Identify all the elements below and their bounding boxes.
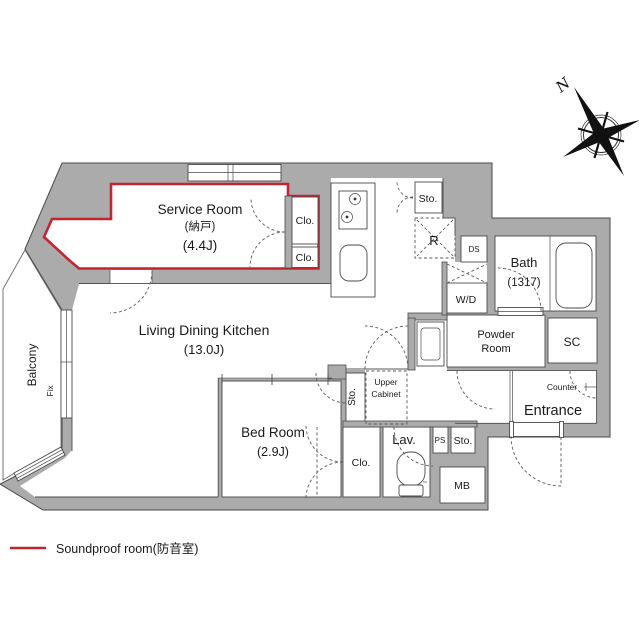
- duct-space-label: DS: [468, 245, 479, 254]
- powder-room-label-1: Powder: [477, 329, 515, 341]
- entrance-label: Entrance: [524, 403, 582, 419]
- service-room-area-label: (4.4J): [183, 238, 218, 253]
- mail-box-label: MB: [454, 480, 470, 492]
- service-door-opening: [110, 270, 152, 284]
- upper-cabinet-label-1: Upper: [374, 377, 397, 387]
- closet-label-2: Clo.: [296, 252, 315, 264]
- service-room-window: [188, 165, 281, 182]
- washer-dryer-label: W/D: [456, 294, 477, 306]
- closet-label-1: Clo.: [296, 215, 315, 227]
- bed-room-area-label: (2.9J): [257, 445, 289, 459]
- bath-label: Bath: [511, 255, 538, 270]
- ldk-label: Living Dining Kitchen: [139, 322, 270, 338]
- bedroom-closet-label: Clo.: [352, 457, 371, 469]
- north-label: N: [551, 73, 574, 96]
- shoe-closet-label: SC: [564, 335, 581, 349]
- bath-size-label: (1317): [507, 277, 540, 289]
- toilet-icon: [397, 452, 427, 496]
- service-room-label: Service Room: [158, 202, 243, 217]
- pipe-space-label: PS: [435, 436, 446, 445]
- service-room-jp-label: (納戸): [185, 220, 216, 233]
- entrance-door-sill: [510, 422, 564, 438]
- balcony-label: Balcony: [25, 344, 39, 387]
- fix-window-label: Fix: [45, 385, 55, 397]
- storage-kitchen-label: Sto.: [419, 193, 438, 205]
- basin-cabinet: [417, 322, 444, 366]
- bed-room-label: Bed Room: [241, 425, 305, 440]
- fix-window: [61, 310, 72, 418]
- legend-soundproof: Soundproof room(防音室): [10, 541, 198, 556]
- stove-icon: [339, 191, 367, 229]
- kitchen-counter: [331, 183, 375, 297]
- upper-cabinet-label-2: Cabinet: [371, 389, 401, 399]
- ldk-area-label: (13.0J): [184, 342, 224, 357]
- compass-icon: N: [551, 73, 639, 176]
- powder-room-label-2: Room: [481, 343, 510, 355]
- refrigerator-label: R: [429, 233, 438, 248]
- sink-icon: [340, 245, 367, 281]
- legend-soundproof-label: Soundproof room(防音室): [56, 541, 198, 556]
- floor-plan-page: Service Room (納戸) (4.4J) Clo. Clo. Livin…: [0, 0, 639, 640]
- powder-room: [447, 315, 545, 367]
- storage-entrance-label: Sto.: [454, 435, 473, 447]
- floor-plan: Service Room (納戸) (4.4J) Clo. Clo. Livin…: [0, 0, 639, 640]
- bathtub-icon: [556, 243, 592, 308]
- counter-label: Counter: [547, 382, 577, 392]
- lavatory-label: Lav.: [392, 432, 416, 447]
- storage-hall-label: Sto.: [347, 388, 358, 406]
